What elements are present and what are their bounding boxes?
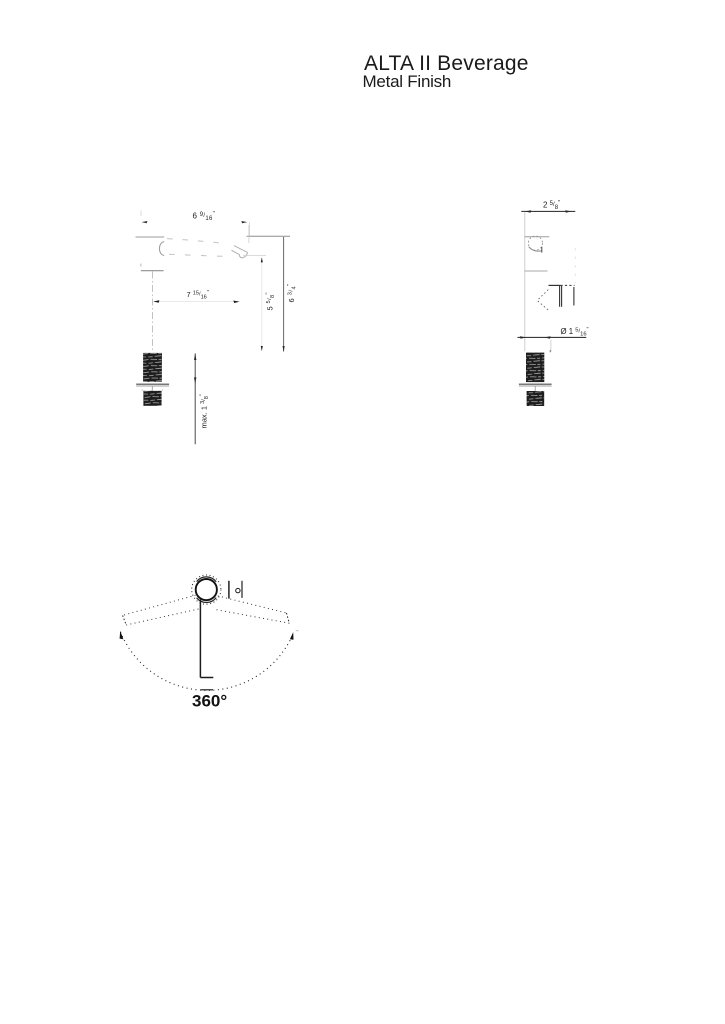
svg-text:7 15/16": 7 15/16" xyxy=(187,290,209,301)
svg-text:5 5/8": 5 5/8" xyxy=(265,292,276,310)
svg-text:360°: 360° xyxy=(192,692,227,711)
svg-text:6 3/4": 6 3/4" xyxy=(287,283,298,302)
svg-text:2 5/8": 2 5/8" xyxy=(543,201,560,212)
svg-text:6 9/16": 6 9/16" xyxy=(193,212,216,223)
svg-text:max. 1 3/8": max. 1 3/8" xyxy=(199,394,210,428)
svg-text:Ø 1 5/16": Ø 1 5/16" xyxy=(561,327,589,338)
